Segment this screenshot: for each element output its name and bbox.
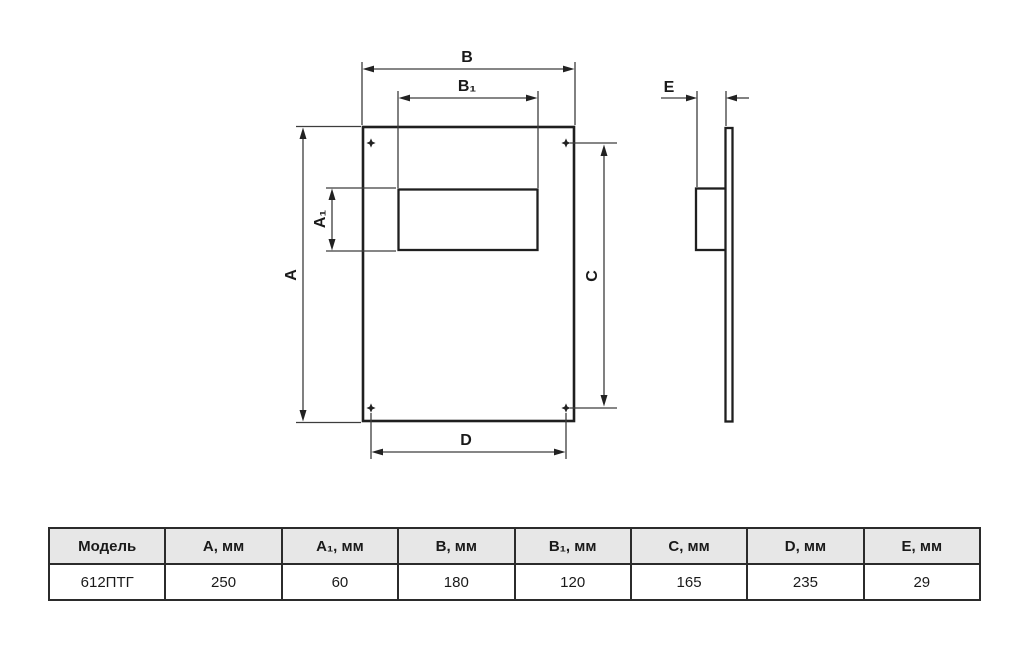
front-plate-outline — [363, 127, 574, 421]
side-view-plate — [726, 128, 733, 422]
arrowhead-icon — [363, 66, 375, 73]
front-view — [363, 127, 574, 421]
dim-label-D: D — [460, 432, 472, 449]
front-cutout-opening — [399, 190, 538, 251]
dimension-A: A — [283, 127, 361, 423]
arrowhead-icon — [300, 128, 307, 140]
col-header-model: Модель — [49, 528, 165, 564]
dim-label-E: E — [664, 79, 675, 96]
arrowhead-icon — [399, 95, 411, 102]
arrowhead-icon — [601, 145, 608, 157]
cell-a1-value: 60 — [282, 564, 398, 600]
dimension-C: C — [570, 143, 617, 408]
col-header-a1: А₁, мм — [282, 528, 398, 564]
cell-c-value: 165 — [631, 564, 747, 600]
col-header-e: Е, мм — [864, 528, 980, 564]
col-header-d: D, мм — [747, 528, 863, 564]
cell-a-value: 250 — [165, 564, 281, 600]
cell-b-value: 180 — [398, 564, 514, 600]
dim-label-B: B — [461, 49, 473, 66]
col-header-b: В, мм — [398, 528, 514, 564]
dimension-E: E — [661, 79, 749, 187]
dim-label-B1: B₁ — [458, 78, 477, 95]
arrowhead-icon — [372, 449, 384, 456]
arrowhead-icon — [554, 449, 566, 456]
cell-model: 612ПТГ — [49, 564, 165, 600]
side-view — [696, 128, 733, 422]
arrowhead-icon — [563, 66, 575, 73]
arrowhead-icon — [601, 395, 608, 407]
technical-drawing: B B₁ A A₁ — [0, 0, 1031, 500]
arrowhead-icon — [526, 95, 538, 102]
arrowhead-icon — [300, 410, 307, 422]
page: B B₁ A A₁ — [0, 0, 1031, 670]
side-view-box — [696, 189, 726, 251]
dim-label-A1: A₁ — [312, 210, 329, 229]
table-header-row: Модель А, мм А₁, мм В, мм В₁, мм С, мм D… — [49, 528, 980, 564]
arrowhead-icon — [329, 239, 336, 251]
cell-d-value: 235 — [747, 564, 863, 600]
dimensions-table: Модель А, мм А₁, мм В, мм В₁, мм С, мм D… — [48, 527, 981, 601]
col-header-a: А, мм — [165, 528, 281, 564]
cell-b1-value: 120 — [515, 564, 631, 600]
arrowhead-icon — [686, 95, 697, 102]
dim-label-C: C — [584, 270, 601, 282]
cell-e-value: 29 — [864, 564, 980, 600]
dim-label-A: A — [283, 269, 300, 281]
table-row: 612ПТГ 250 60 180 120 165 235 29 — [49, 564, 980, 600]
col-header-b1: В₁, мм — [515, 528, 631, 564]
arrowhead-icon — [329, 189, 336, 201]
arrowhead-icon — [726, 95, 737, 102]
col-header-c: С, мм — [631, 528, 747, 564]
